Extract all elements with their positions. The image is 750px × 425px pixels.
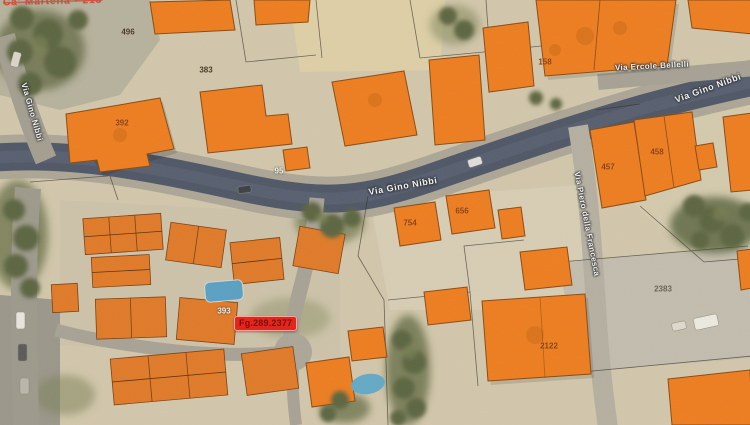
- map-canvas: [0, 0, 750, 425]
- grain-overlay: [0, 0, 750, 425]
- parcel-marker-badge[interactable]: Fg.289.2377: [234, 316, 297, 331]
- map-viewport[interactable]: Ca' Martella - 213 Via Gino Nibbi Via Gi…: [0, 0, 750, 425]
- parcel-marker-label: Fg.289.2377: [239, 319, 292, 328]
